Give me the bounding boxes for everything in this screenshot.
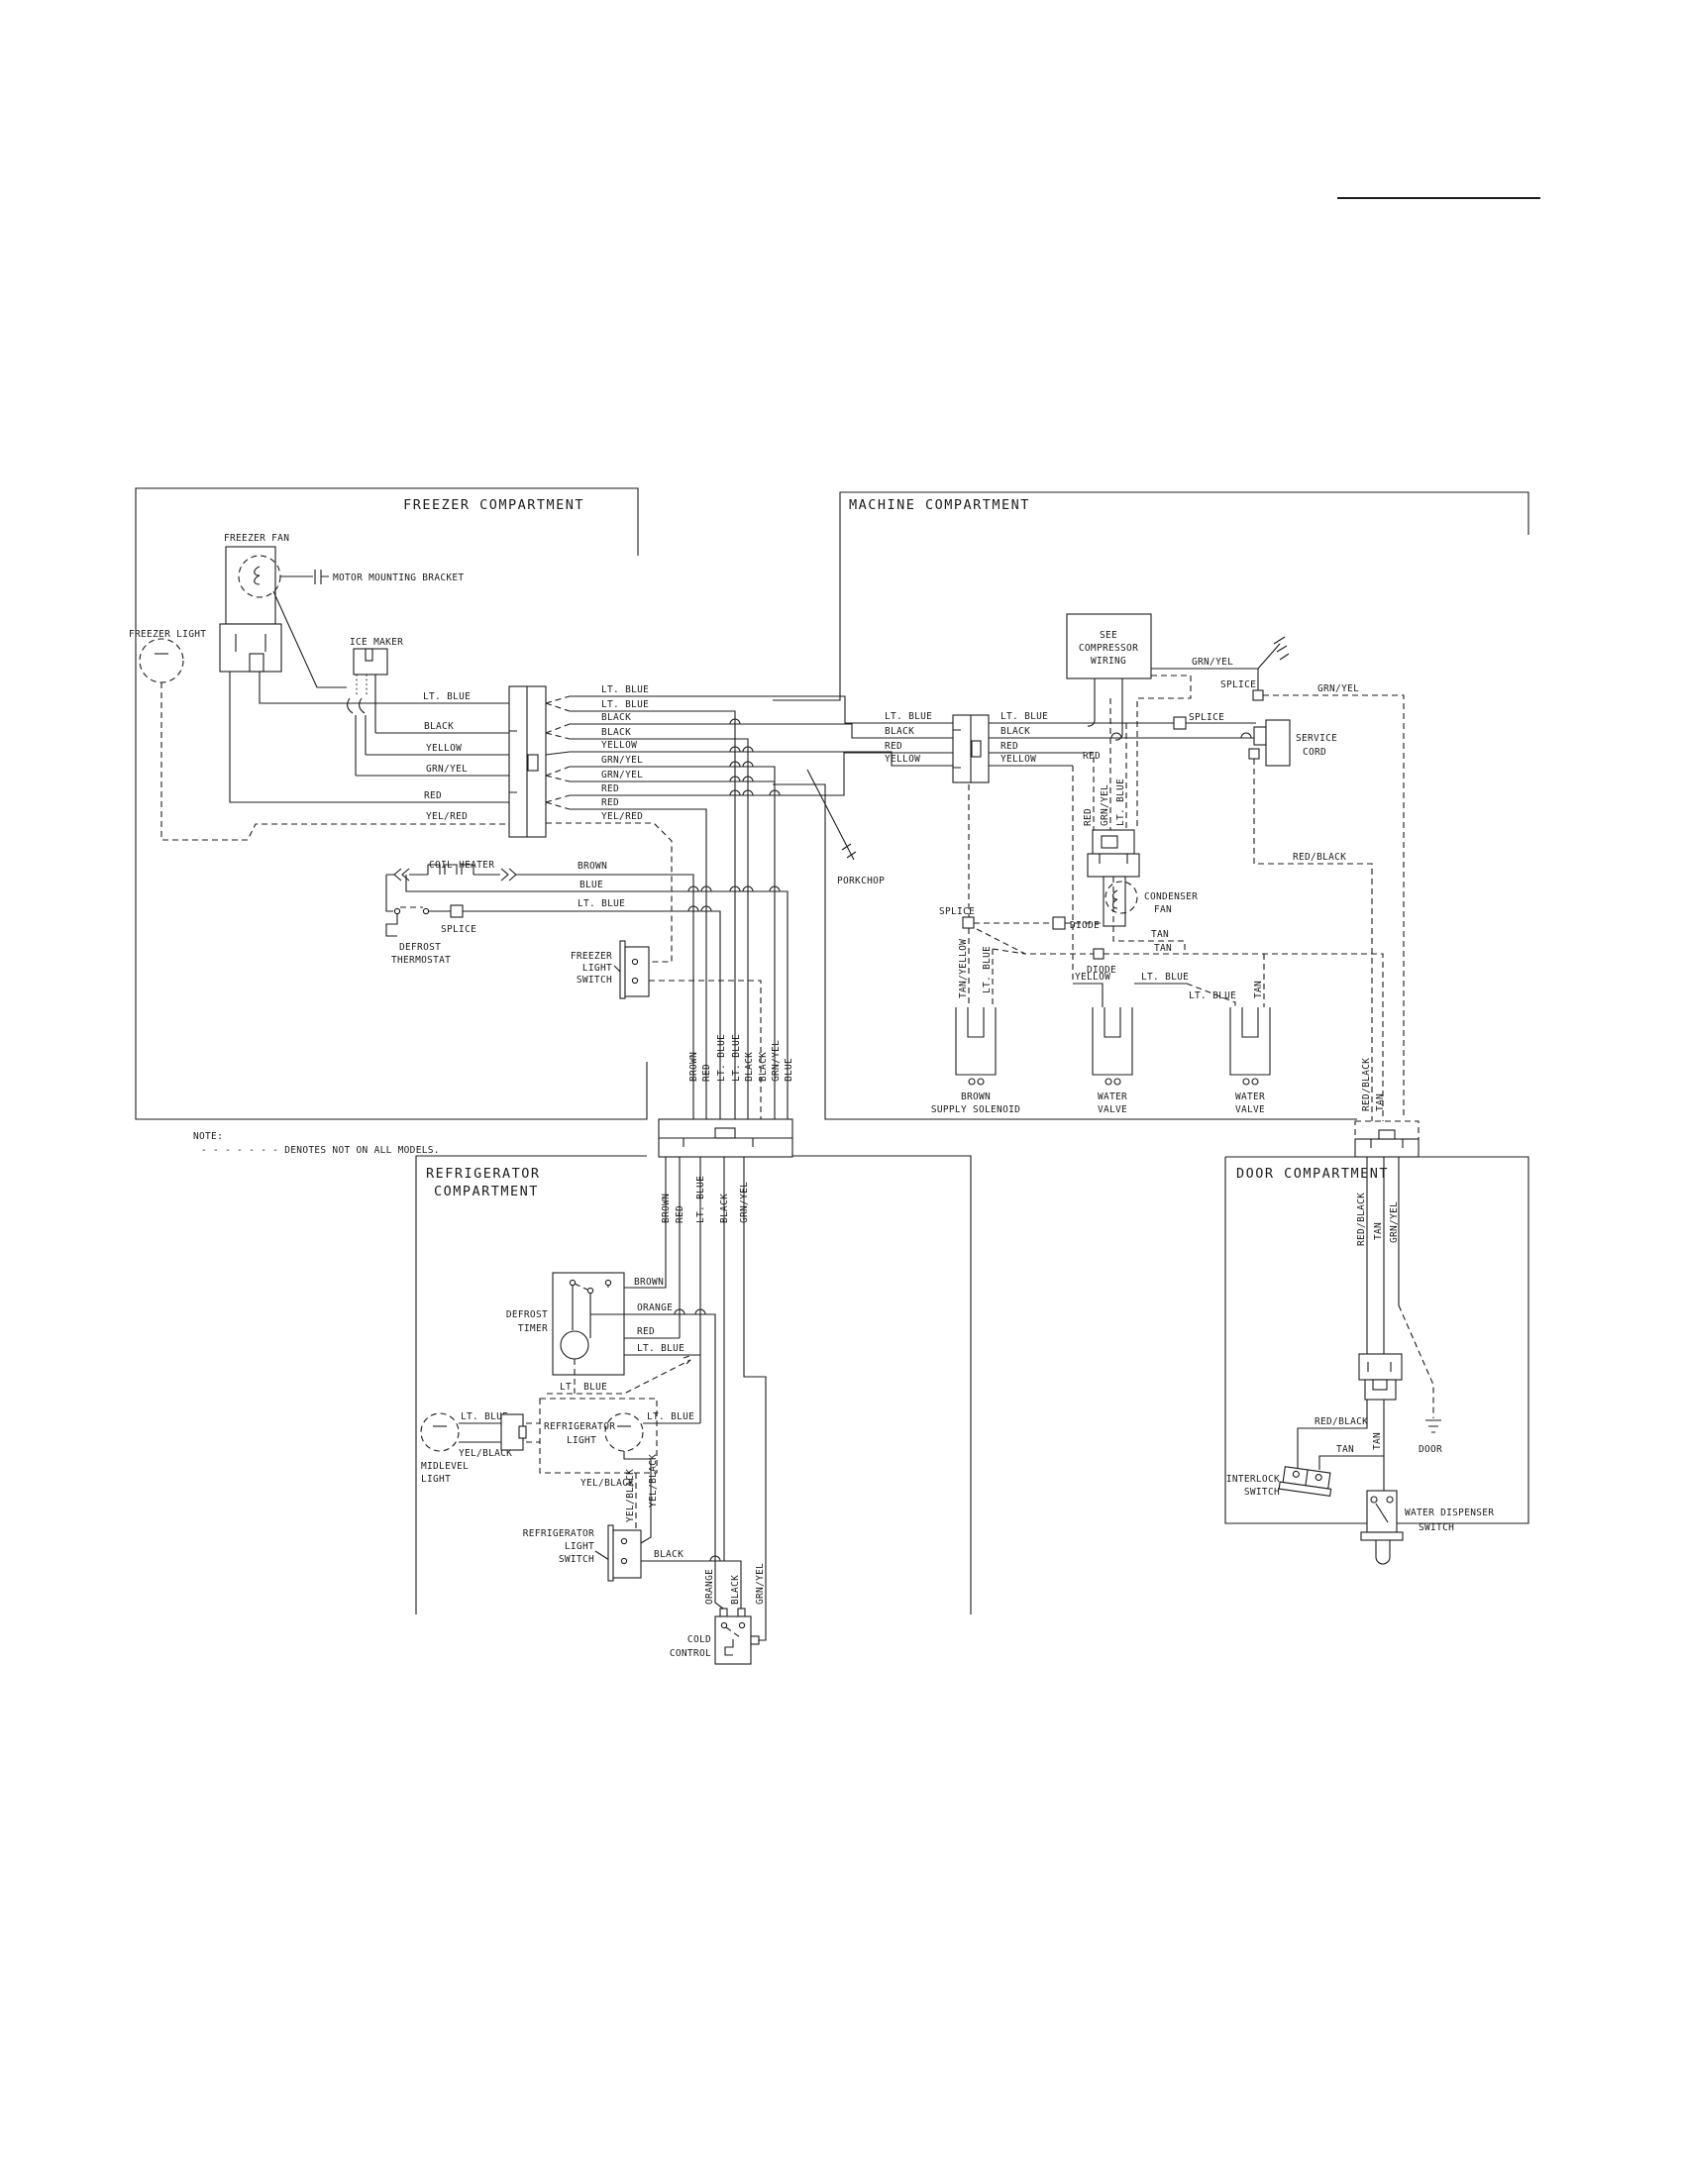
wire-label: BLACK bbox=[885, 726, 914, 737]
wire-label-vertical: LT. BLUE bbox=[982, 946, 993, 993]
freezer-light-switch-label: FREEZER bbox=[571, 951, 612, 962]
refrigerator-connector bbox=[659, 1119, 792, 1157]
dispenser-switch-base bbox=[1361, 1532, 1403, 1540]
wire-hop-icon bbox=[1111, 733, 1251, 738]
freezer-fan: FREEZER FAN MOTOR MOUNTING BRACKET bbox=[220, 533, 464, 687]
wire-label-vertical: BLACK bbox=[758, 1052, 769, 1082]
refrigerator-compartment-title: COMPARTMENT bbox=[434, 1184, 539, 1199]
wire-label: RED/BLACK bbox=[1315, 1416, 1368, 1427]
thermostat-contact bbox=[423, 908, 428, 913]
connector-key bbox=[715, 1128, 735, 1138]
wire-label-vertical: BROWN bbox=[688, 1052, 699, 1082]
wire-label: RED bbox=[601, 783, 619, 794]
note-text: - - - - - - - DENOTES NOT ON ALL MODELS. bbox=[201, 1145, 440, 1156]
refrigerator-light-bulb-icon bbox=[605, 1413, 643, 1451]
thermostat-capillary bbox=[386, 914, 397, 936]
splice-icon bbox=[1249, 749, 1259, 759]
wire-label: RED/BLACK bbox=[1293, 852, 1346, 863]
service-cord-body bbox=[1266, 720, 1290, 766]
wire-label: YELLOW bbox=[1000, 754, 1036, 765]
wire-label-vertical: LT. BLUE bbox=[731, 1034, 742, 1082]
wire-label-vertical: GRN/YEL bbox=[755, 1563, 766, 1605]
defrost-timer-body bbox=[553, 1273, 624, 1375]
wire-label: LT. BLUE bbox=[601, 684, 649, 695]
dispenser-switch-body bbox=[1367, 1491, 1397, 1532]
cold-control: ORANGE BLACK GRN/YEL COLD CONTROL bbox=[670, 1563, 766, 1664]
wire-label-vertical: LT. BLUE bbox=[716, 1034, 727, 1082]
bracket-label: MOTOR MOUNTING BRACKET bbox=[333, 572, 464, 583]
wire-hop-icon bbox=[730, 719, 780, 795]
valves: BROWN SUPPLY SOLENOID WATER VALVE WATER … bbox=[931, 1007, 1270, 1115]
wire-label: LT. BLUE bbox=[1189, 990, 1236, 1001]
wire-label-vertical: RED/BLACK bbox=[1356, 1193, 1367, 1246]
wire-label-vertical: GRN/YEL bbox=[1389, 1201, 1400, 1243]
freezer-light-switch-label: SWITCH bbox=[577, 975, 612, 986]
wire-label: TAN bbox=[1154, 943, 1172, 954]
wire-label: LT. BLUE bbox=[647, 1411, 694, 1422]
wire-label: GRN/YEL bbox=[601, 770, 643, 780]
wire-label: YELLOW bbox=[1075, 972, 1110, 983]
switch-body bbox=[625, 947, 649, 996]
wire-label-vertical: YEL/BLACK bbox=[648, 1454, 659, 1508]
defrost-thermostat-label: THERMOSTAT bbox=[391, 955, 451, 966]
connector-key bbox=[528, 755, 538, 771]
service-cord-label: CORD bbox=[1303, 747, 1326, 758]
door-drops: RED/BLACK TAN GRN/YEL DOOR bbox=[1356, 1157, 1442, 1455]
switch-plate bbox=[620, 941, 625, 998]
wire-label: GRN/YEL bbox=[426, 764, 468, 775]
coil-dot bbox=[978, 1079, 984, 1085]
machine-compartment-outline bbox=[773, 492, 1528, 1119]
wire-label: BROWN bbox=[578, 861, 607, 872]
midlevel-light-bulb-icon bbox=[421, 1413, 459, 1451]
defrost-timer-label: DEFROST bbox=[506, 1309, 548, 1320]
splice-icon bbox=[1253, 690, 1263, 700]
cold-control-label: COLD bbox=[687, 1634, 711, 1645]
freezer-light-switch-label: LIGHT bbox=[582, 963, 612, 974]
wire-grn-yel-to-ground bbox=[1399, 1305, 1433, 1418]
wire-label: YEL/RED bbox=[601, 811, 643, 822]
splice-label: SPLICE bbox=[441, 924, 476, 935]
ice-maker-leads-dotted bbox=[357, 675, 367, 695]
wire-red-black bbox=[1298, 1400, 1367, 1470]
wire-label-vertical: RED bbox=[701, 1064, 712, 1082]
wire-lt-blue-2 bbox=[570, 711, 735, 1119]
wire-label-vertical: TAN/YELLOW bbox=[958, 939, 969, 998]
diode-icon bbox=[1053, 917, 1065, 929]
wire-label: BLACK bbox=[601, 712, 631, 723]
interlock-switch-body bbox=[1279, 1466, 1333, 1496]
splice-icon bbox=[1174, 717, 1186, 729]
wire-label: TAN bbox=[1336, 1444, 1354, 1455]
porkchop-pointer bbox=[807, 770, 856, 860]
wire-label: LT. BLUE bbox=[1000, 711, 1048, 722]
wire-label: LT. BLUE bbox=[637, 1343, 684, 1354]
midlevel-light-wires bbox=[459, 1423, 501, 1442]
wire-label: GRN/YEL bbox=[1192, 657, 1233, 668]
midlevel-light-label: LIGHT bbox=[421, 1474, 451, 1485]
wire-label-vertical: RED bbox=[1083, 808, 1094, 826]
refrigerator-light-switch-label: LIGHT bbox=[565, 1541, 594, 1552]
thermostat-contact bbox=[394, 908, 399, 913]
door-compartment-title: DOOR COMPARTMENT bbox=[1236, 1166, 1389, 1182]
diode-icon bbox=[1094, 949, 1104, 959]
wire-label: LT. BLUE bbox=[578, 898, 625, 909]
wire-label: BLUE bbox=[579, 880, 603, 890]
water-valve-label: WATER bbox=[1098, 1092, 1127, 1102]
connector-body bbox=[1359, 1354, 1402, 1380]
door-mid-connector bbox=[1359, 1354, 1402, 1400]
connector-body bbox=[1355, 1139, 1419, 1157]
optional-light-outline bbox=[540, 1399, 657, 1473]
freezer-fan-housing bbox=[226, 547, 275, 624]
wire-label: RED bbox=[637, 1326, 655, 1337]
wire-label: GRN/YEL bbox=[601, 755, 643, 766]
refrigerator-light-switch-label: SWITCH bbox=[559, 1554, 594, 1565]
overload-block bbox=[1088, 854, 1139, 877]
wire-label: LT. BLUE bbox=[601, 699, 649, 710]
note: NOTE: - - - - - - - DENOTES NOT ON ALL M… bbox=[193, 1131, 440, 1156]
wire-label-vertical: TAN bbox=[1375, 1093, 1386, 1111]
splice-icon bbox=[451, 905, 463, 917]
freezer-fan-label: FREEZER FAN bbox=[224, 533, 289, 544]
wire-label-vertical: LT. BLUE bbox=[695, 1176, 706, 1223]
valve-circuit: SPLICE DIODE DIODE TAN TAN TAN/YELLOW LT… bbox=[939, 784, 1383, 1121]
wiring-diagram-page: FREEZER COMPARTMENT FREEZER FAN MOTOR MO… bbox=[0, 0, 1684, 2179]
defrost-timer-label: TIMER bbox=[518, 1323, 548, 1334]
wire-label-vertical: RED/BLACK bbox=[1361, 1058, 1372, 1111]
switch-plate bbox=[608, 1525, 613, 1581]
water-valve-label: VALVE bbox=[1235, 1104, 1265, 1115]
wire-hop-icon bbox=[348, 698, 365, 713]
wire-label: BLACK bbox=[424, 721, 454, 732]
interlock-switch-label: SWITCH bbox=[1244, 1487, 1280, 1498]
wire-label-vertical: ORANGE bbox=[704, 1569, 715, 1605]
supply-solenoid-label: SUPPLY SOLENOID bbox=[931, 1104, 1020, 1115]
refrigerator-compartment-outline bbox=[416, 1156, 971, 1614]
freezer-wires-left: LT. BLUE BLACK YELLOW GRN/YEL RED YEL/RE… bbox=[230, 672, 509, 822]
coil-heater-circuit: COIL HEATER SPLICE DEFROST THERMOSTAT BR… bbox=[386, 860, 788, 1119]
wire-label-vertical: BLUE bbox=[784, 1058, 794, 1082]
ice-maker-label: ICE MAKER bbox=[350, 637, 403, 648]
splice-label: SPLICE bbox=[939, 906, 975, 917]
condenser-fan-label: FAN bbox=[1154, 904, 1172, 915]
water-valve-plug bbox=[1230, 1007, 1270, 1075]
compressor-box-label: SEE bbox=[1100, 630, 1117, 641]
door-compartment-outline bbox=[1225, 1157, 1528, 1523]
wire-label: YELLOW bbox=[426, 743, 462, 754]
interlock-switch-label: INTERLOCK bbox=[1226, 1474, 1280, 1485]
wire-label: TAN bbox=[1151, 929, 1169, 940]
compressor-wiring-box: SEE COMPRESSOR WIRING bbox=[1067, 614, 1191, 830]
freezer-compartment: FREEZER COMPARTMENT FREEZER FAN MOTOR MO… bbox=[129, 497, 953, 1119]
freezer-light-bulb-icon bbox=[140, 639, 183, 682]
wire-label: BLACK bbox=[654, 1549, 684, 1560]
compartment-outlines bbox=[136, 488, 1528, 1614]
wire-label: GRN/YEL bbox=[1317, 683, 1359, 694]
wire-red-black-dashed bbox=[1254, 759, 1372, 1121]
water-valve-label: WATER bbox=[1235, 1092, 1265, 1102]
supply-solenoid-plug bbox=[956, 1007, 996, 1075]
wire-label: YELLOW bbox=[885, 754, 920, 765]
wire-label-vertical: BLACK bbox=[719, 1194, 730, 1223]
splice-label: SPLICE bbox=[1220, 679, 1256, 690]
wire-label-vertical: TAN bbox=[1373, 1222, 1384, 1240]
diode-label: DIODE bbox=[1070, 920, 1100, 931]
freezer-connector bbox=[509, 686, 546, 837]
wire-label-vertical: TAN bbox=[1253, 981, 1264, 998]
service-cord-label: SERVICE bbox=[1296, 733, 1337, 744]
refrigerator-compartment: REFRIGERATOR COMPARTMENT BROWN RED LT. B… bbox=[421, 1119, 792, 1664]
ground-icon bbox=[1258, 637, 1289, 669]
door-ground-label: DOOR bbox=[1419, 1444, 1442, 1455]
freezer-compartment-title: FREEZER COMPARTMENT bbox=[403, 497, 584, 513]
machine-compartment-title: MACHINE COMPARTMENT bbox=[849, 497, 1030, 513]
connector-key bbox=[972, 741, 981, 757]
dashed-links bbox=[526, 1423, 540, 1442]
ice-maker-leads bbox=[356, 675, 375, 776]
relay-key bbox=[1102, 836, 1117, 848]
machine-connector bbox=[953, 715, 989, 782]
water-dispenser-switch: TAN WATER DISPENSER SWITCH bbox=[1361, 1400, 1494, 1564]
wire-label: RED bbox=[601, 797, 619, 808]
compressor-box-label: WIRING bbox=[1091, 656, 1126, 667]
coil-dot bbox=[1114, 1079, 1120, 1085]
porkchop-label: PORKCHOP bbox=[837, 876, 885, 886]
compressor-box-label: COMPRESSOR bbox=[1079, 643, 1138, 654]
wire-label-vertical: BLACK bbox=[730, 1575, 741, 1605]
wire-label: LT. BLUE bbox=[423, 691, 471, 702]
water-valve-plug bbox=[1093, 1007, 1132, 1075]
wire-label-vertical: GRN/YEL bbox=[1100, 784, 1110, 826]
freezer-light-label: FREEZER LIGHT bbox=[129, 629, 206, 640]
wire-yellow-valve bbox=[1073, 984, 1103, 1007]
splice-icon bbox=[963, 917, 974, 928]
refrigerator-light-switch-label: REFRIGERATOR bbox=[523, 1528, 594, 1539]
wire-label: BLACK bbox=[1000, 726, 1030, 737]
bracket-symbol-icon bbox=[280, 570, 329, 584]
compressor-relay-circuit: RED RED GRN/YEL LT. BLUE CONDENSER FAN bbox=[989, 698, 1198, 984]
wire-label-vertical: RED bbox=[675, 1205, 685, 1223]
door-compartment: DOOR COMPARTMENT RED/BLACK TAN GRN/YEL D… bbox=[1226, 1121, 1494, 1564]
cold-control-side-terminal bbox=[751, 1636, 759, 1644]
ice-maker-tab bbox=[366, 649, 372, 661]
cold-control-terminal bbox=[738, 1609, 745, 1616]
porkchop-callout: PORKCHOP bbox=[807, 770, 885, 886]
compressor-leads bbox=[1088, 678, 1122, 740]
connector-key bbox=[1379, 1130, 1395, 1139]
interlock-switch: RED/BLACK TAN INTERLOCK SWITCH bbox=[1226, 1400, 1384, 1498]
service-cord-tab bbox=[1254, 727, 1266, 745]
coil-dot bbox=[1252, 1079, 1258, 1085]
switch-return-wire bbox=[649, 981, 761, 1119]
wire-black bbox=[641, 1561, 741, 1609]
coil-dot bbox=[1243, 1079, 1249, 1085]
cold-control-terminal bbox=[720, 1609, 727, 1616]
coil-dot bbox=[1105, 1079, 1111, 1085]
tan-dashed-wires bbox=[1104, 877, 1383, 1121]
wire-yel-red-dashed bbox=[546, 823, 672, 962]
cold-control-label: CONTROL bbox=[670, 1648, 711, 1659]
wire-lt-blue-defrost bbox=[429, 911, 720, 1119]
compressor-relay-dashed-route bbox=[1137, 676, 1191, 830]
wire-label: LT. BLUE bbox=[560, 1382, 607, 1393]
wire-label: YELLOW bbox=[601, 740, 637, 751]
wire-label: LT. BLUE bbox=[885, 711, 932, 722]
dispenser-switch-label: WATER DISPENSER bbox=[1405, 1508, 1494, 1518]
refrigerator-wiring-diagram: FREEZER COMPARTMENT FREEZER FAN MOTOR MO… bbox=[0, 0, 1684, 2179]
defrost-thermostat-label: DEFROST bbox=[399, 942, 441, 953]
door-connector bbox=[1355, 1121, 1419, 1157]
wire-hop-icon bbox=[688, 886, 780, 911]
wire-label-vertical: BROWN bbox=[661, 1194, 672, 1223]
wire-brown bbox=[608, 1157, 666, 1288]
wire-label: RED bbox=[885, 741, 902, 752]
machine-compartment: MACHINE COMPARTMENT LT. BLUE BLACK RED Y… bbox=[807, 497, 1404, 1121]
wire-label-vertical: GRN/YEL bbox=[771, 1040, 782, 1082]
wire-tan bbox=[1319, 1456, 1384, 1470]
connector-key bbox=[519, 1426, 526, 1438]
refrigerator-light: REFRIGERATOR LIGHT LT. BLUE YEL/BLACK YE… bbox=[540, 1399, 700, 1543]
water-valve-label: VALVE bbox=[1098, 1104, 1127, 1115]
freezer-light-switch: FREEZER LIGHT SWITCH bbox=[571, 941, 761, 1119]
connector-key bbox=[1373, 1380, 1387, 1390]
wire-label: LT. BLUE bbox=[1141, 972, 1189, 983]
supply-solenoid-label: BROWN bbox=[961, 1092, 991, 1102]
freezer-bundle-labels: BROWN RED LT. BLUE LT. BLUE BLACK BLACK … bbox=[688, 1034, 794, 1082]
wire-label: BLACK bbox=[601, 727, 631, 738]
wire-label: ORANGE bbox=[637, 1302, 673, 1313]
wire-label: BROWN bbox=[634, 1277, 664, 1288]
wire-label: RED bbox=[424, 790, 442, 801]
wire-label-vertical: YEL/BLACK bbox=[625, 1469, 636, 1522]
wire-label-vertical: LT. BLUE bbox=[1115, 779, 1126, 826]
refrigerator-light-label: REFRIGERATOR bbox=[544, 1421, 615, 1432]
coil-dot bbox=[969, 1079, 975, 1085]
switch-body bbox=[613, 1530, 641, 1578]
fan-motor-lead bbox=[273, 591, 347, 687]
freezer-fan-connector bbox=[250, 654, 263, 672]
splice-label: SPLICE bbox=[1189, 712, 1224, 723]
wire-label: YEL/RED bbox=[426, 811, 468, 822]
midlevel-light-label: MIDLEVEL bbox=[421, 1461, 469, 1472]
wire-label-vertical: GRN/YEL bbox=[739, 1182, 750, 1223]
freezer-light: FREEZER LIGHT bbox=[129, 629, 509, 840]
refrigerator-light-label: LIGHT bbox=[567, 1435, 596, 1446]
wire-lt-blue bbox=[260, 672, 509, 703]
wire-label-vertical: TAN bbox=[1372, 1432, 1383, 1450]
dispenser-switch-label: SWITCH bbox=[1419, 1522, 1454, 1533]
ground-circuit: GRN/YEL SPLICE GRN/YEL bbox=[1151, 637, 1404, 1119]
midlevel-light: MIDLEVEL LIGHT LT. BLUE YEL/BLACK bbox=[421, 1411, 540, 1485]
condenser-fan-label: CONDENSER bbox=[1144, 891, 1198, 902]
refrigerator-compartment-title: REFRIGERATOR bbox=[426, 1166, 541, 1182]
wire-label: RED bbox=[1000, 741, 1018, 752]
wire-label-vertical: BLACK bbox=[744, 1052, 755, 1082]
dispenser-plunger bbox=[1376, 1540, 1390, 1564]
note-heading: NOTE: bbox=[193, 1131, 223, 1142]
ground-icon bbox=[1425, 1420, 1441, 1432]
